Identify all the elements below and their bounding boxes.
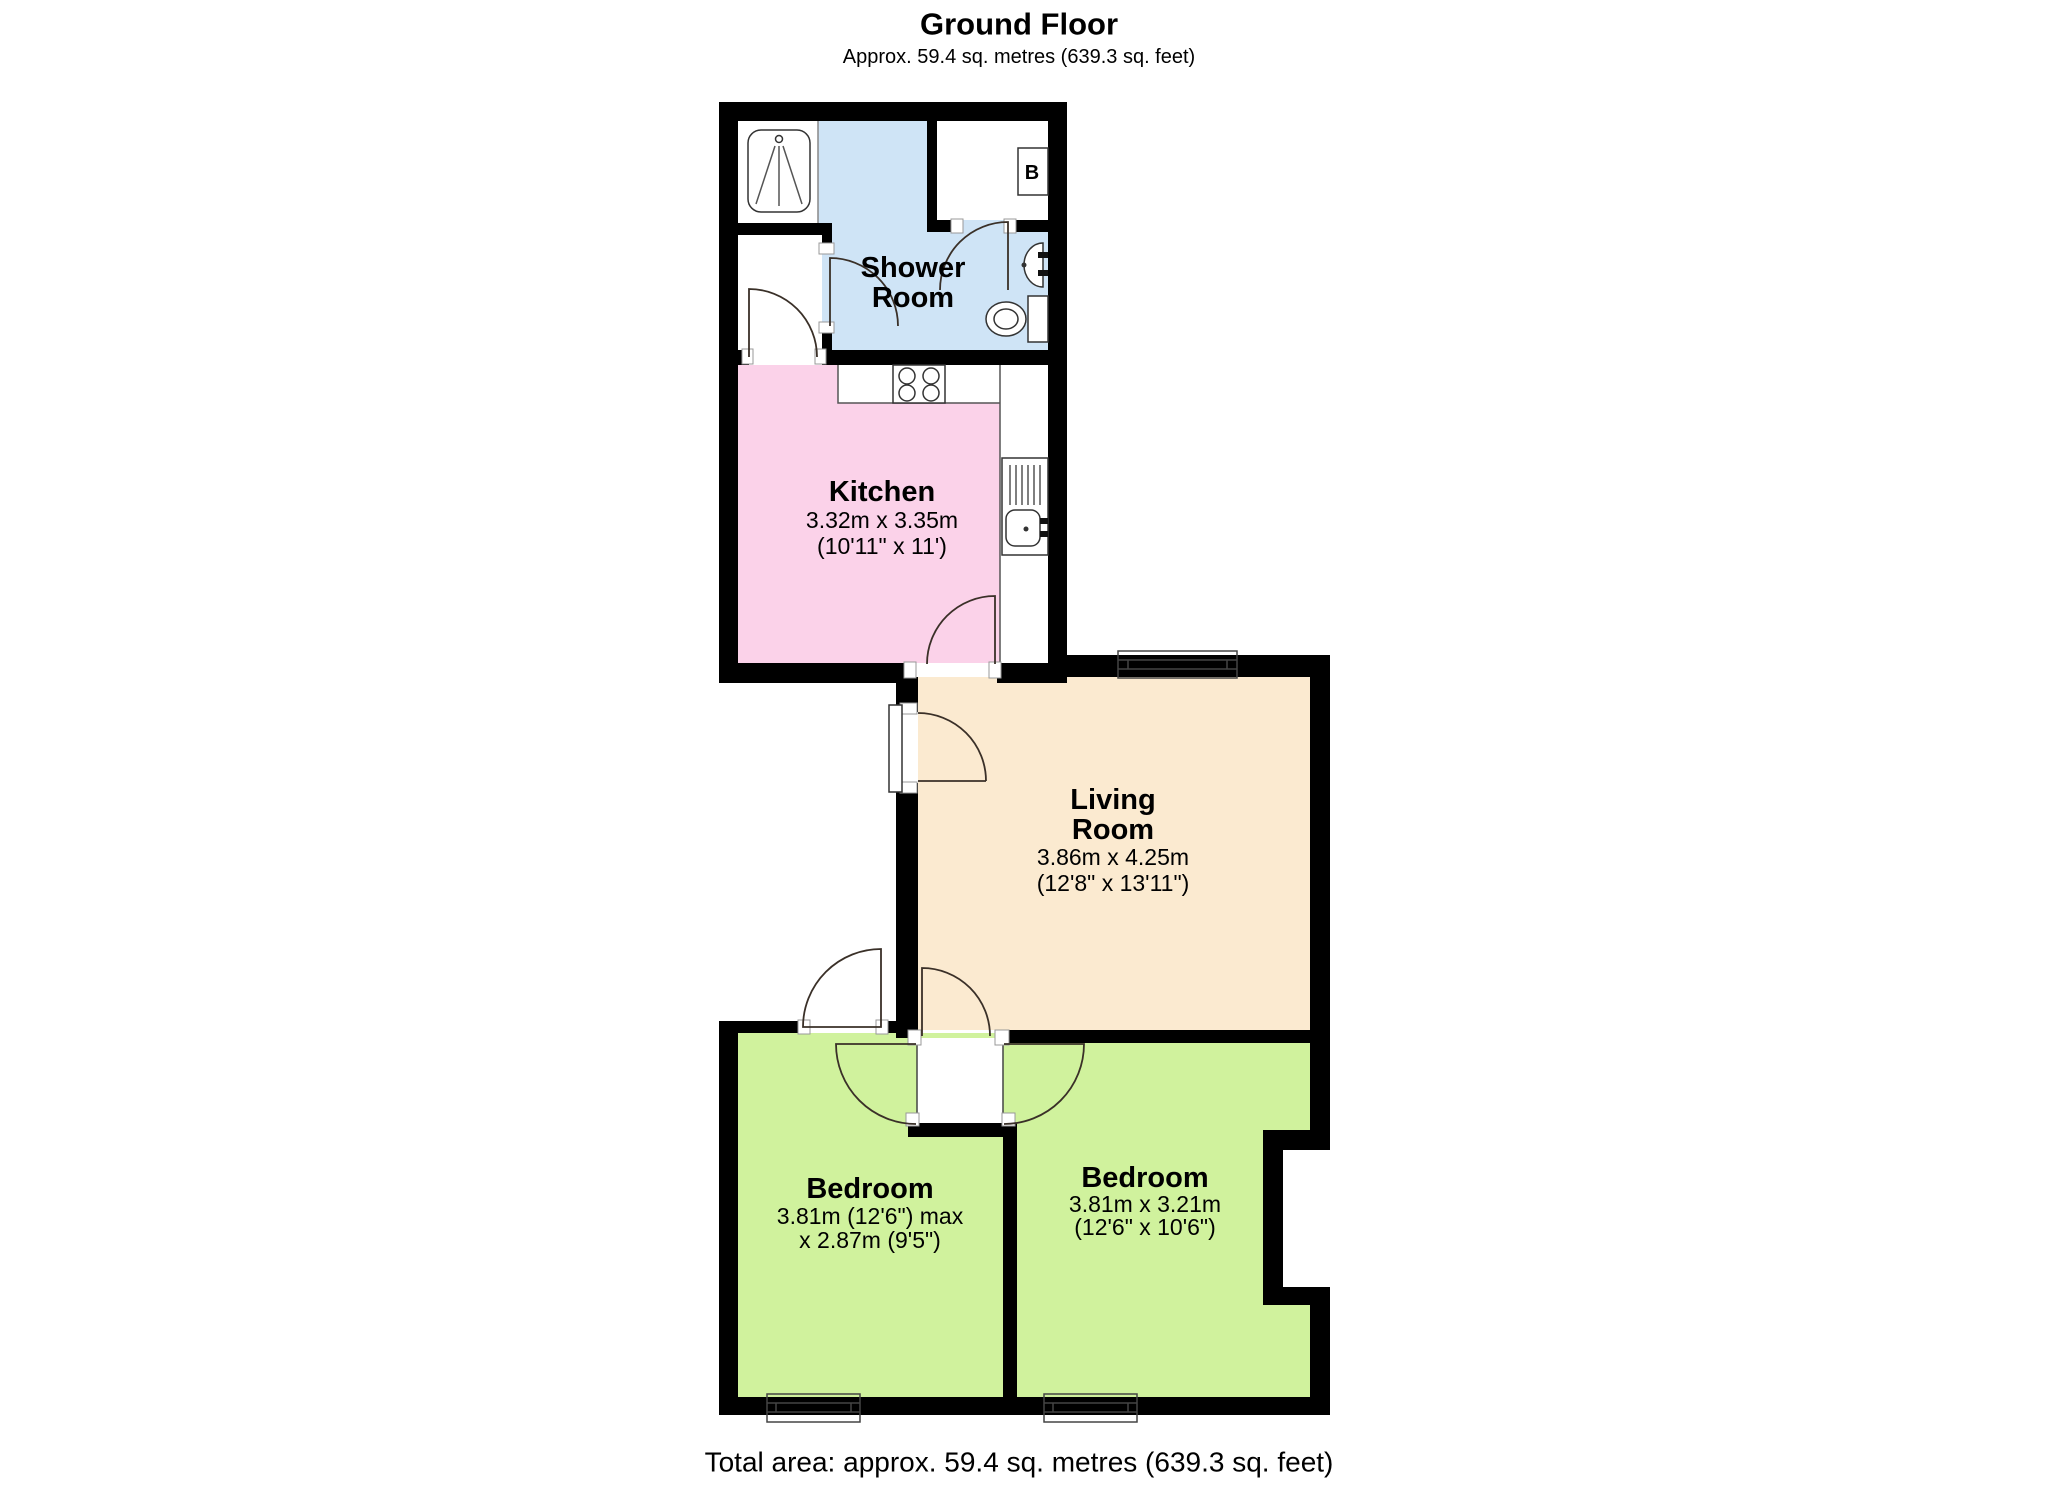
bedroom-left-label: Bedroom <box>806 1173 933 1205</box>
bedroom-left-outer-door-arc <box>803 949 881 1027</box>
floorplan-page: Ground Floor Approx. 59.4 sq. metres (63… <box>0 0 2048 1489</box>
wall-segment <box>719 223 832 235</box>
sink-icon <box>1002 458 1048 555</box>
wall-segment <box>719 102 738 683</box>
hob-icon <box>893 365 945 403</box>
wall-segment <box>1048 655 1330 677</box>
bedroom-right-label: Bedroom <box>1081 1162 1208 1194</box>
shower-room-label-line2: Room <box>872 282 954 314</box>
wall-segment <box>719 663 913 683</box>
door-jamb <box>904 662 916 678</box>
living-room-label-line1: Living <box>1070 784 1155 816</box>
bedroom-left-dims-line2: x 2.87m (9'5") <box>799 1227 941 1253</box>
wall-segment <box>1263 1287 1330 1305</box>
wall-segment <box>908 1123 1017 1137</box>
bedroom-right-dims-imperial: (12'6" x 10'6") <box>1074 1214 1215 1240</box>
inner-hall-floor <box>738 235 822 350</box>
wall-segment <box>719 1021 738 1415</box>
kitchen-dims-metric: 3.32m x 3.35m <box>806 507 958 533</box>
door-jamb <box>908 1030 921 1045</box>
shower-room-label-line1: Shower <box>861 252 966 284</box>
bedroom-left-dims-line1: 3.81m (12'6") max <box>777 1203 964 1229</box>
floorplan-canvas: Ground Floor Approx. 59.4 sq. metres (63… <box>0 0 2048 1489</box>
door-jamb <box>742 349 753 364</box>
wall-segment <box>822 350 1067 365</box>
entrance-door-slab <box>889 705 902 792</box>
boiler-box: B <box>1018 148 1048 195</box>
living-room-dims-imperial: (12'8" x 13'11") <box>1037 870 1190 896</box>
wall-segment <box>1263 1150 1283 1287</box>
wall-segment <box>1048 102 1067 683</box>
door-jamb <box>995 1030 1009 1045</box>
wall-segment <box>1310 1305 1330 1397</box>
wall-segment <box>927 121 937 220</box>
boiler-label: B <box>1025 162 1039 184</box>
page-subtitle: Approx. 59.4 sq. metres (639.3 sq. feet) <box>843 46 1195 68</box>
wall-segment <box>1263 1130 1330 1150</box>
wall-segment <box>719 102 1067 121</box>
kitchen-label: Kitchen <box>829 476 935 508</box>
wall-segment <box>1003 1123 1017 1397</box>
wall-segment <box>1003 1030 1310 1043</box>
wall-segment <box>1310 655 1330 1043</box>
living-room-dims-metric: 3.86m x 4.25m <box>1037 844 1189 870</box>
door-jamb <box>819 243 834 254</box>
door-jamb <box>819 322 834 333</box>
total-area-text: Total area: approx. 59.4 sq. metres (639… <box>705 1447 1334 1478</box>
living-room-label-line2: Room <box>1072 814 1154 846</box>
page-title: Ground Floor <box>920 7 1118 42</box>
inner-lobby-floor <box>917 1038 1003 1123</box>
kitchen-dims-imperial: (10'11" x 11') <box>817 533 947 559</box>
door-jamb <box>989 662 1001 678</box>
wall-segment <box>896 783 918 1038</box>
shower-tray-icon <box>748 130 810 212</box>
door-jamb <box>1004 219 1016 233</box>
external-recess <box>1283 1150 1330 1287</box>
door-jamb <box>951 219 963 233</box>
